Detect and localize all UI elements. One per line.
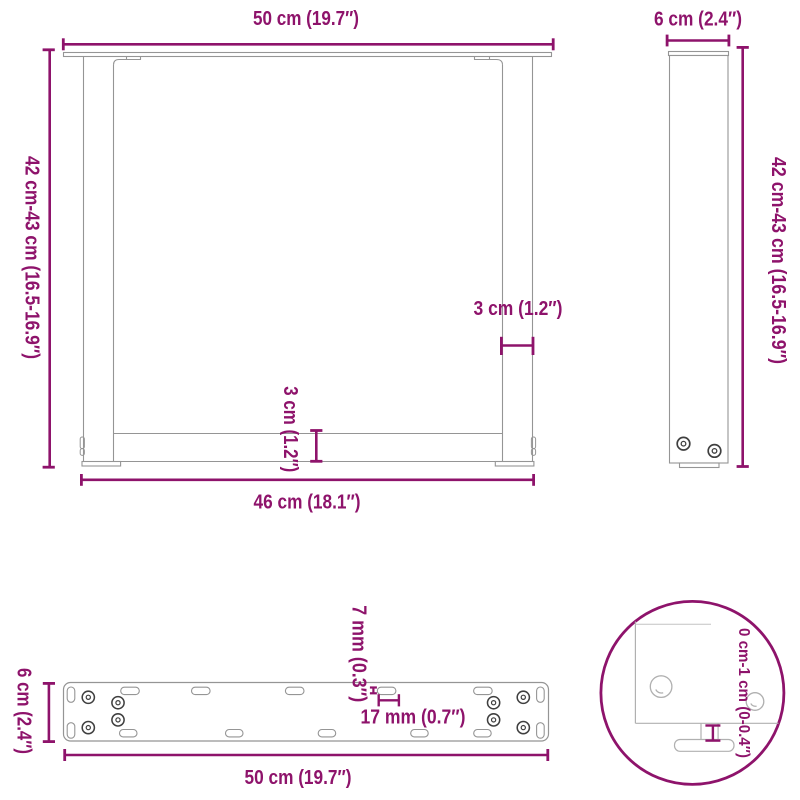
svg-text:42 cm-43 cm (16.5-16.9″): 42 cm-43 cm (16.5-16.9″) <box>767 157 789 364</box>
svg-text:3 cm (1.2″): 3 cm (1.2″) <box>279 386 301 472</box>
svg-text:17 mm (0.7″): 17 mm (0.7″) <box>361 707 466 729</box>
svg-text:3 cm (1.2″): 3 cm (1.2″) <box>474 298 563 320</box>
svg-text:6 cm (2.4″): 6 cm (2.4″) <box>13 668 35 754</box>
svg-text:0 cm-1 cm (0-0.4″): 0 cm-1 cm (0-0.4″) <box>735 628 752 758</box>
svg-text:7 mm (0.3″): 7 mm (0.3″) <box>348 605 370 702</box>
svg-text:42 cm-43 cm (16.5-16.9″): 42 cm-43 cm (16.5-16.9″) <box>21 156 43 359</box>
svg-text:50 cm (19.7″): 50 cm (19.7″) <box>253 8 359 30</box>
svg-text:46 cm (18.1″): 46 cm (18.1″) <box>254 491 361 513</box>
svg-text:6 cm (2.4″): 6 cm (2.4″) <box>654 8 742 30</box>
svg-text:50 cm (19.7″): 50 cm (19.7″) <box>245 767 352 789</box>
